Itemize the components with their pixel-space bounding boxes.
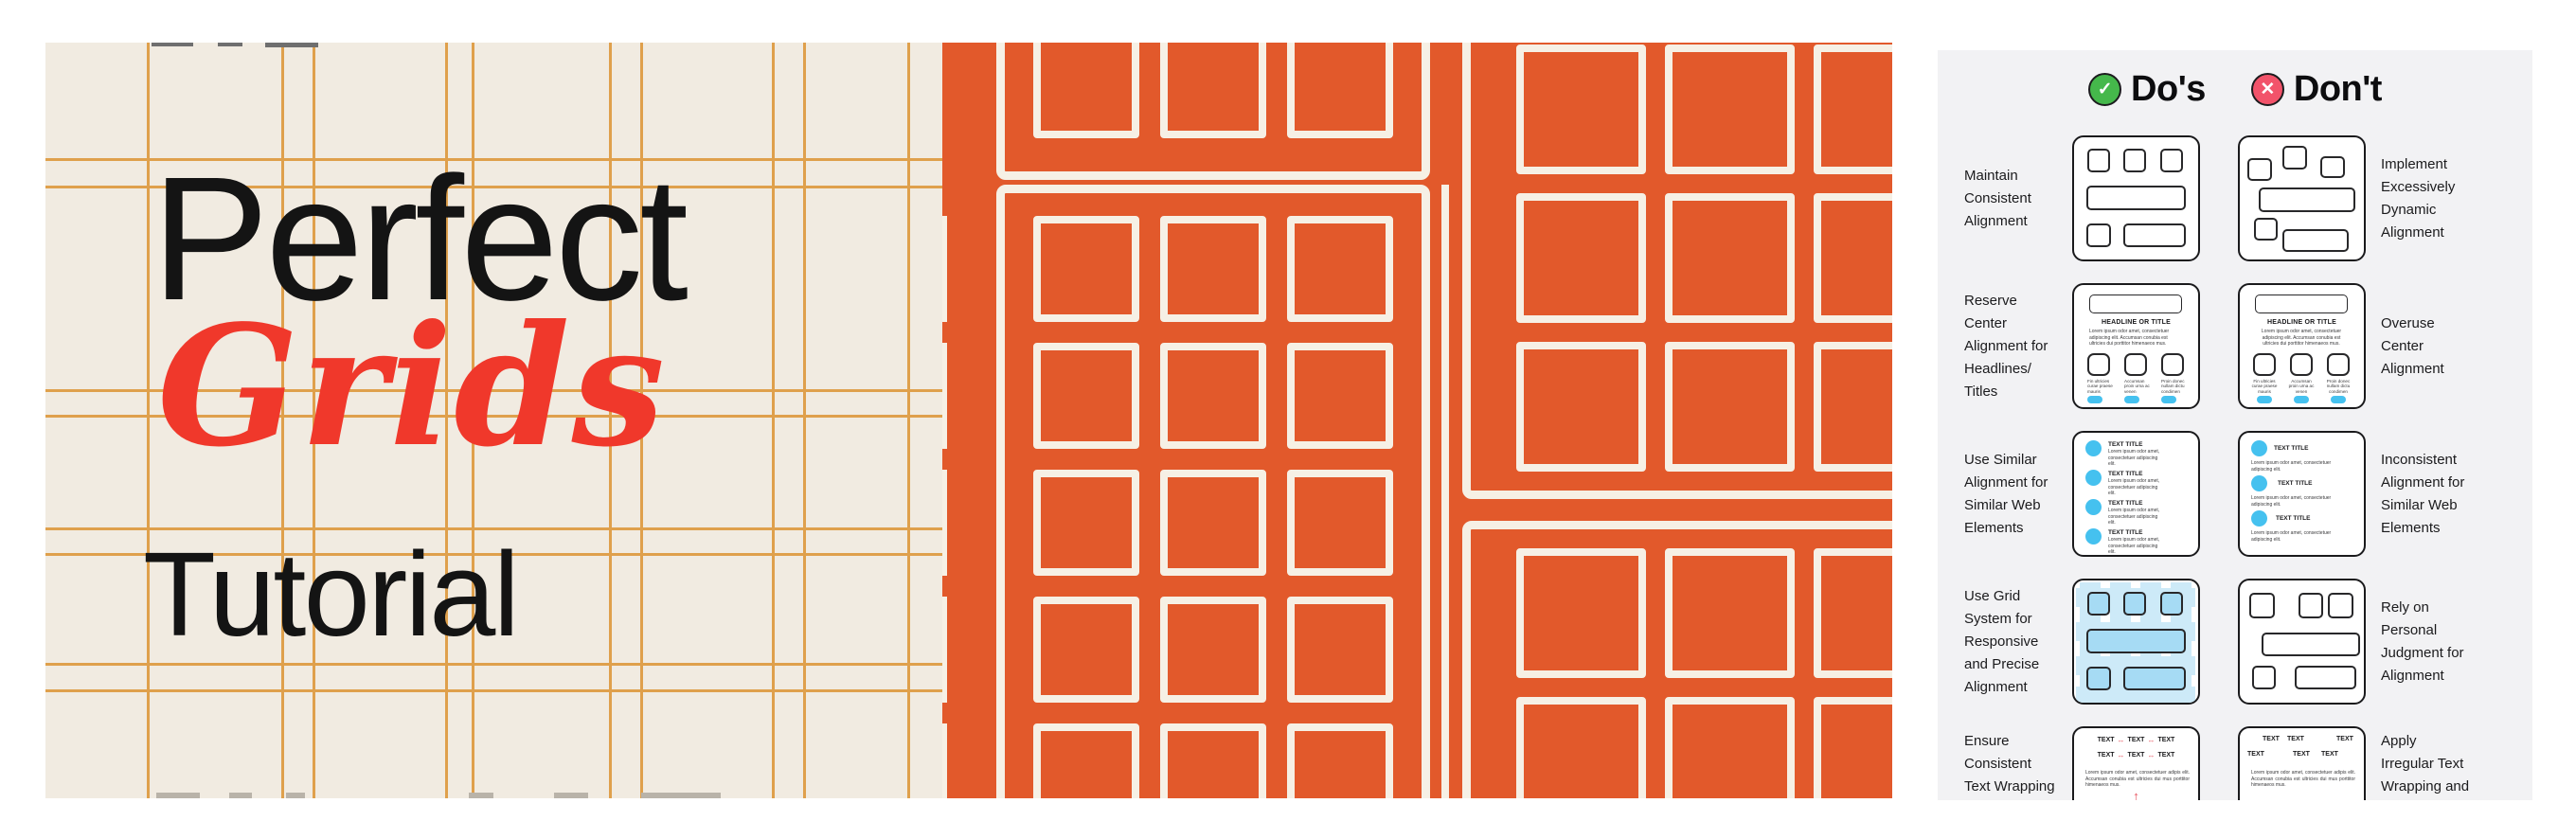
item-body: Lorem ipsum odor amet, consectetuer adip… <box>2251 460 2346 473</box>
wireframe-bar <box>2123 223 2186 247</box>
dont-example-card <box>2238 579 2366 705</box>
avatar-circle <box>2085 440 2102 456</box>
cropped-edge-mark <box>265 43 318 47</box>
pattern-frame-top-right <box>1462 43 1892 499</box>
pattern-square <box>1516 342 1646 472</box>
wireframe-box <box>2087 592 2110 616</box>
do-example-card: TEXT TITLE Lorem ipsum odor amet, consec… <box>2072 431 2200 557</box>
item-body: Lorem ipsum odor amet, consectetuer adip… <box>2251 530 2346 543</box>
wireframe-bar <box>2123 667 2186 690</box>
body-text: Lorem ipsum odor amet, consectetuer adip… <box>2251 770 2355 789</box>
item-body: Lorem ipsum odor amet, consectetuer adip… <box>2108 449 2165 468</box>
panel-header: ✓ Do's ✕ Don't <box>1938 69 2532 110</box>
left-guideline-label: Use Grid System for Responsive and Preci… <box>1964 585 2070 699</box>
pattern-square <box>1516 548 1646 678</box>
dont-header: ✕ Don't <box>2251 69 2382 110</box>
caption-text: Accumsan proin urna ac venen <box>2287 379 2316 394</box>
pattern-square <box>1160 597 1266 703</box>
pattern-edge-line <box>942 343 947 449</box>
pattern-square <box>1033 43 1139 138</box>
pattern-square <box>1287 470 1393 576</box>
cropped-edge-mark <box>554 793 588 798</box>
dont-label: Don't <box>2294 69 2382 110</box>
cropped-edge-mark <box>469 793 493 798</box>
body-text: Lorem ipsum odor amet, consectetuer adip… <box>2255 329 2348 348</box>
wireframe-box <box>2161 353 2184 376</box>
spacing-arrow-icon: ↔ <box>2147 751 2155 759</box>
guideline-row-center-alignment: Reserve Center Alignment for Headlines/ … <box>1938 283 2532 409</box>
wireframe-bar <box>2282 229 2349 252</box>
wireframe-box <box>2086 667 2111 690</box>
guide-line <box>907 43 910 798</box>
pattern-edge-line <box>942 597 947 703</box>
vertical-spacing-arrow-icon: ↑ <box>2133 789 2140 800</box>
wireframe-box <box>2328 593 2353 618</box>
pattern-square <box>1287 597 1393 703</box>
wireframe-bar <box>2295 666 2356 689</box>
wireframe-banner <box>2089 295 2182 313</box>
wireframe-box <box>2160 592 2183 616</box>
pattern-edge-line <box>942 723 947 798</box>
pattern-square <box>1287 343 1393 449</box>
pattern-square <box>1665 342 1795 472</box>
text-token: TEXT <box>2247 751 2264 758</box>
wireframe-box <box>2253 353 2276 376</box>
wireframe-box <box>2249 593 2275 618</box>
guide-line <box>45 663 942 666</box>
pattern-square <box>1814 548 1892 678</box>
do-example-card: TEXT ↔ TEXT ↔ TEXT TEXT ↔ TEXT ↔ TEXT Lo… <box>2072 726 2200 800</box>
pattern-square <box>1665 45 1795 174</box>
spacing-arrow-icon: ↔ <box>2118 736 2125 744</box>
title-line-tutorial: Tutorial <box>143 535 517 654</box>
button-placeholder <box>2257 396 2272 403</box>
pattern-square <box>1665 697 1795 798</box>
button-placeholder <box>2124 396 2139 403</box>
item-title: TEXT TITLE <box>2108 500 2142 507</box>
button-placeholder <box>2294 396 2309 403</box>
cropped-edge-mark <box>229 793 252 798</box>
body-text: Lorem ipsum odor amet, consectetuer adip… <box>2089 329 2182 348</box>
dont-example-card: TEXT TEXT TEXT TEXT TEXT TEXT Lorem ipsu… <box>2238 726 2366 800</box>
button-placeholder <box>2161 396 2176 403</box>
cropped-edge-mark <box>218 43 242 46</box>
guide-line <box>803 43 806 798</box>
left-guideline-label: Reserve Center Alignment for Headlines/ … <box>1964 290 2070 403</box>
body-text: Lorem ipsum odor amet, consectetuer adip… <box>2085 770 2190 789</box>
guide-line <box>45 689 942 692</box>
dos-label: Do's <box>2131 69 2206 110</box>
pattern-square <box>1665 548 1795 678</box>
pattern-square <box>1160 216 1266 322</box>
wireframe-box <box>2299 593 2323 618</box>
text-token: TEXT <box>2293 751 2310 758</box>
pattern-square <box>1033 597 1139 703</box>
right-guideline-label: Rely on Personal Judgment for Alignment <box>2381 597 2525 687</box>
spacing-arrow-icon: ↔ <box>2147 736 2155 744</box>
wireframe-box <box>2327 353 2350 376</box>
wireframe-box <box>2320 156 2345 178</box>
text-token: TEXT <box>2098 737 2115 743</box>
wireframe-box <box>2290 353 2313 376</box>
dont-example-card: HEADLINE OR TITLE Lorem ipsum odor amet,… <box>2238 283 2366 409</box>
pattern-square <box>1814 697 1892 798</box>
item-title: TEXT TITLE <box>2108 471 2142 477</box>
pattern-frame-bottom-right <box>1462 521 1892 798</box>
wireframe-bar <box>2262 633 2360 656</box>
text-token: TEXT <box>2321 751 2338 758</box>
caption-text: Proin donec nullam dictu condimen <box>2324 379 2352 394</box>
pattern-square <box>1160 43 1266 138</box>
avatar-circle <box>2251 440 2267 456</box>
cropped-edge-mark <box>641 793 721 798</box>
wireframe-box <box>2160 149 2183 172</box>
pattern-square <box>1160 470 1266 576</box>
wireframe-bar <box>2259 187 2355 212</box>
pattern-square <box>1160 723 1266 798</box>
pattern-square <box>1033 723 1139 798</box>
dont-example-card: TEXT TITLE Lorem ipsum odor amet, consec… <box>2238 431 2366 557</box>
spacing-arrow-icon: ↔ <box>2118 751 2125 759</box>
wireframe-banner <box>2255 295 2348 313</box>
item-title: TEXT TITLE <box>2274 445 2308 452</box>
wireframe-box <box>2247 158 2272 181</box>
cross-icon: ✕ <box>2251 73 2284 106</box>
text-row: TEXT ↔ TEXT ↔ TEXT <box>2074 751 2198 759</box>
wireframe-box <box>2123 592 2146 616</box>
wireframe-box <box>2123 149 2146 172</box>
window-grid-pattern <box>942 43 1892 798</box>
headline-text: HEADLINE OR TITLE <box>2240 319 2364 326</box>
avatar-circle <box>2085 470 2102 486</box>
guide-line <box>772 43 775 798</box>
text-token: TEXT <box>2157 752 2174 759</box>
dos-header: ✓ Do's <box>2088 69 2206 110</box>
pattern-square <box>1814 193 1892 323</box>
wireframe-box <box>2124 353 2147 376</box>
do-example-card: HEADLINE OR TITLE Lorem ipsum odor amet,… <box>2072 283 2200 409</box>
pattern-square <box>1033 216 1139 322</box>
pattern-edge-line <box>942 470 947 576</box>
text-token: TEXT <box>2157 737 2174 743</box>
avatar-circle <box>2251 510 2267 527</box>
text-token: TEXT <box>2128 752 2145 759</box>
wireframe-box <box>2252 666 2276 689</box>
do-example-card <box>2072 135 2200 261</box>
right-guideline-label: Overuse Center Alignment <box>2381 312 2525 381</box>
item-title: TEXT TITLE <box>2276 515 2310 522</box>
caption-text: Accumsan proin urna ac venen <box>2124 379 2153 394</box>
pattern-square <box>1287 216 1393 322</box>
button-placeholder <box>2087 396 2102 403</box>
text-token: TEXT <box>2098 752 2115 759</box>
left-guideline-label: Maintain Consistent Alignment <box>1964 165 2070 233</box>
wireframe-box <box>2087 353 2110 376</box>
item-title: TEXT TITLE <box>2108 441 2142 448</box>
text-token: TEXT <box>2336 736 2353 742</box>
text-row: TEXT ↔ TEXT ↔ TEXT <box>2074 736 2198 744</box>
guideline-row-alignment: Maintain Consistent Alignment Implement … <box>1938 135 2532 261</box>
wireframe-box <box>2254 218 2278 241</box>
pattern-frame-main-left <box>996 185 1430 798</box>
avatar-circle <box>2085 528 2102 544</box>
item-body: Lorem ipsum odor amet, consectetuer adip… <box>2108 478 2165 497</box>
avatar-circle <box>2251 475 2267 491</box>
item-body: Lorem ipsum odor amet, consectetuer adip… <box>2251 495 2346 508</box>
item-title: TEXT TITLE <box>2108 529 2142 536</box>
title-line-grids: Grids <box>157 304 667 470</box>
pattern-square <box>1516 193 1646 323</box>
right-guideline-label: Implement Excessively Dynamic Alignment <box>2381 153 2525 244</box>
text-token: TEXT <box>2287 736 2304 742</box>
right-guideline-label: Apply Irregular Text Wrapping and <box>2381 730 2525 798</box>
design-tutorial-graphic: Perfect Grids Tutorial <box>0 0 2576 839</box>
wireframe-bar <box>2086 629 2186 653</box>
pattern-square <box>1287 43 1393 138</box>
pattern-square <box>1516 697 1646 798</box>
wireframe-box <box>2086 223 2111 247</box>
button-placeholder <box>2331 396 2346 403</box>
caption-text: Proin donec nullam dictu condimen <box>2161 379 2190 394</box>
guideline-row-similar-elements: Use Similar Alignment for Similar Web El… <box>1938 431 2532 557</box>
banner-grid-background: Perfect Grids Tutorial <box>45 43 942 798</box>
guideline-row-grid-system: Use Grid System for Responsive and Preci… <box>1938 579 2532 705</box>
title-banner: Perfect Grids Tutorial <box>45 43 1892 798</box>
headline-text: HEADLINE OR TITLE <box>2074 319 2198 326</box>
do-example-card <box>2072 579 2200 705</box>
pattern-square <box>1814 45 1892 174</box>
pattern-frame-top-left <box>996 43 1430 180</box>
item-body: Lorem ipsum odor amet, consectetuer adip… <box>2108 508 2165 527</box>
pattern-square <box>1516 45 1646 174</box>
avatar-circle <box>2085 499 2102 515</box>
wireframe-box <box>2282 146 2307 170</box>
dos-donts-panel: ✓ Do's ✕ Don't Maintain Consistent Align… <box>1938 50 2532 800</box>
right-guideline-label: Inconsistent Alignment for Similar Web E… <box>2381 449 2525 540</box>
guide-line <box>147 43 150 798</box>
caption-text: Fin ultricies curae praese mauris <box>2250 379 2279 394</box>
pattern-square <box>1033 343 1139 449</box>
text-token: TEXT <box>2128 737 2145 743</box>
cropped-edge-mark <box>286 793 305 798</box>
pattern-double-line <box>1441 185 1449 798</box>
pattern-square <box>1033 470 1139 576</box>
pattern-square <box>1160 343 1266 449</box>
guideline-row-text-wrapping: Ensure Consistent Text Wrapping TEXT ↔ T… <box>1938 726 2532 800</box>
text-token: TEXT <box>2263 736 2280 742</box>
item-body: Lorem ipsum odor amet, consectetuer adip… <box>2108 537 2165 556</box>
pattern-square <box>1287 723 1393 798</box>
pattern-square <box>1665 193 1795 323</box>
cropped-edge-mark <box>156 793 200 798</box>
wireframe-box <box>2087 149 2110 172</box>
check-icon: ✓ <box>2088 73 2121 106</box>
left-guideline-label: Use Similar Alignment for Similar Web El… <box>1964 449 2070 540</box>
pattern-square <box>1814 342 1892 472</box>
item-title: TEXT TITLE <box>2278 480 2312 487</box>
left-guideline-label: Ensure Consistent Text Wrapping <box>1964 730 2070 798</box>
caption-text: Fin ultricies curae praese mauris <box>2087 379 2116 394</box>
dont-example-card <box>2238 135 2366 261</box>
wireframe-bar <box>2086 186 2186 210</box>
cropped-edge-mark <box>152 43 193 46</box>
pattern-edge-line <box>942 216 947 322</box>
